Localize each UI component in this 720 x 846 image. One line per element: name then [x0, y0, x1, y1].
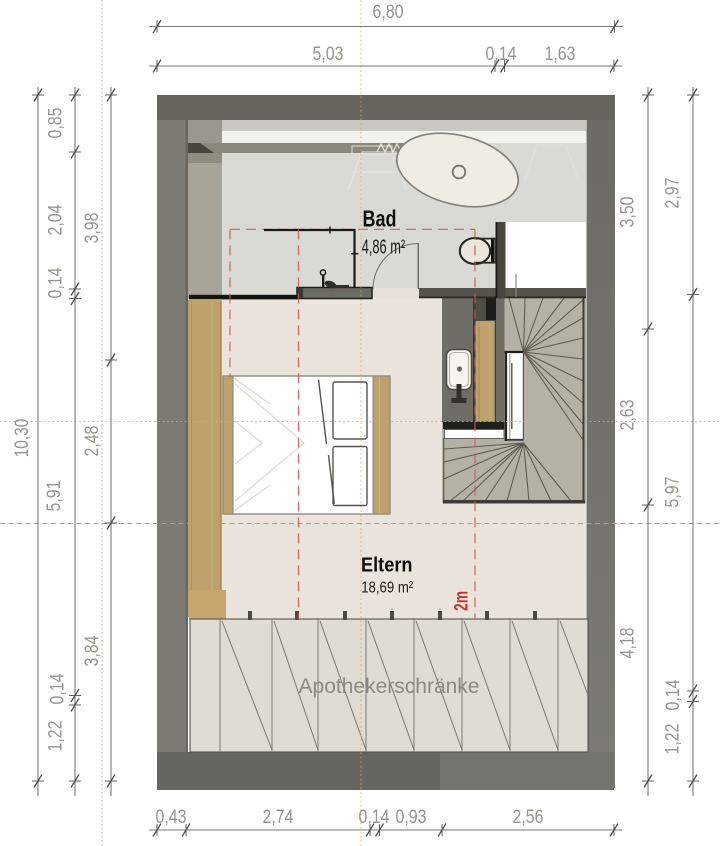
svg-text:4,86 m²: 4,86 m²: [362, 235, 406, 258]
svg-text:5,03: 5,03: [313, 44, 344, 65]
svg-text:3,84: 3,84: [82, 635, 103, 666]
svg-text:0,14: 0,14: [663, 679, 684, 710]
svg-text:0,14: 0,14: [359, 807, 390, 828]
svg-text:0,14: 0,14: [48, 673, 69, 704]
svg-text:0,14: 0,14: [486, 44, 517, 65]
svg-text:Apothekerschränke: Apothekerschränke: [299, 675, 480, 698]
svg-text:0,85: 0,85: [46, 108, 67, 139]
svg-text:1,22: 1,22: [663, 724, 684, 755]
svg-text:5,97: 5,97: [663, 477, 684, 508]
svg-text:Eltern: Eltern: [361, 555, 413, 577]
svg-text:2,48: 2,48: [82, 426, 103, 457]
svg-text:4,18: 4,18: [618, 628, 639, 659]
svg-text:2,63: 2,63: [618, 400, 639, 431]
svg-text:0,14: 0,14: [46, 267, 67, 298]
svg-text:6,80: 6,80: [373, 2, 404, 23]
svg-text:2m: 2m: [452, 591, 473, 611]
svg-text:10,30: 10,30: [12, 419, 33, 458]
svg-text:2,56: 2,56: [513, 807, 544, 828]
svg-text:0,93: 0,93: [396, 807, 427, 828]
svg-text:5,91: 5,91: [44, 481, 65, 512]
svg-text:2,97: 2,97: [663, 178, 684, 209]
svg-text:2,74: 2,74: [263, 807, 294, 828]
svg-text:Bad: Bad: [363, 206, 397, 232]
svg-text:3,98: 3,98: [82, 213, 103, 244]
svg-text:1,63: 1,63: [545, 44, 576, 65]
svg-text:0,43: 0,43: [156, 807, 187, 828]
svg-text:2,04: 2,04: [46, 204, 67, 235]
svg-text:1,22: 1,22: [46, 721, 67, 752]
svg-text:18,69 m²: 18,69 m²: [361, 579, 414, 596]
svg-text:3,50: 3,50: [618, 197, 639, 228]
